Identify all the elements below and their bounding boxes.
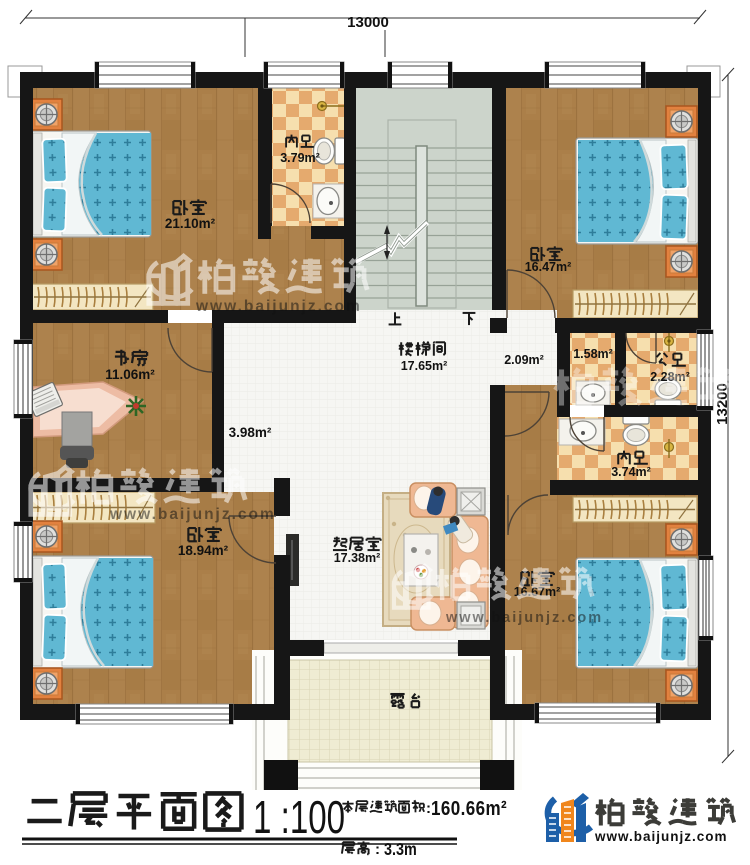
svg-text:3.3m: 3.3m [384,840,417,860]
svg-text:2.09m²: 2.09m² [504,353,544,367]
svg-text:160.66m²: 160.66m² [431,797,507,820]
svg-text:1 :100: 1 :100 [253,793,345,843]
svg-text:16.47m²: 16.47m² [525,260,572,274]
svg-text:www.baijunjz.com: www.baijunjz.com [109,506,276,523]
svg-text:21.10m²: 21.10m² [165,216,216,231]
svg-text:1.58m²: 1.58m² [573,347,613,361]
svg-text:3.74m²: 3.74m² [611,465,651,479]
svg-text:www.baijunjz.com: www.baijunjz.com [594,829,728,844]
svg-text:3.98m²: 3.98m² [229,425,272,440]
svg-text:18.94m²: 18.94m² [178,543,229,558]
svg-text:3.79m²: 3.79m² [280,151,320,165]
svg-text:11.06m²: 11.06m² [105,367,155,382]
svg-text:17.65m²: 17.65m² [401,359,448,373]
svg-text:17.38m²: 17.38m² [334,551,381,565]
svg-text:www.baijunjz.com: www.baijunjz.com [445,610,603,626]
svg-text::: : [375,841,380,858]
svg-text:www.baijunjz.com: www.baijunjz.com [195,298,362,315]
svg-text:13000: 13000 [347,14,389,31]
